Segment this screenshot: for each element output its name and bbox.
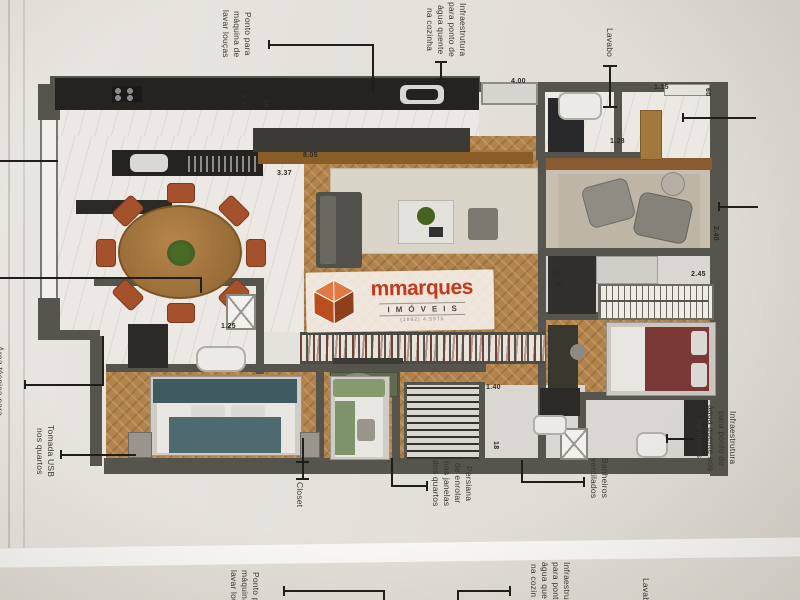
toilet bbox=[533, 415, 567, 435]
dining-chair bbox=[167, 303, 195, 323]
dining-table bbox=[118, 205, 242, 299]
leader-line bbox=[372, 44, 374, 92]
annotation-ponto-maquina-lavar: Ponto para máquina de lavar louças bbox=[220, 10, 253, 58]
leader-line bbox=[720, 206, 758, 208]
leader-tick bbox=[509, 586, 511, 596]
headboard-wall bbox=[545, 158, 712, 170]
leader-line bbox=[391, 458, 393, 487]
leader-line bbox=[302, 438, 304, 479]
wardrobe-hangers bbox=[598, 284, 714, 320]
annotation-tomada-usb: Tomada USB nos quartos bbox=[34, 425, 56, 477]
dimension-label: 8.05 bbox=[303, 152, 318, 159]
leader-line bbox=[102, 336, 104, 386]
master-toilet bbox=[636, 432, 668, 458]
coffee-table bbox=[398, 200, 454, 244]
pillow bbox=[691, 331, 707, 355]
logo-cube-icon bbox=[312, 278, 357, 327]
leader-line bbox=[457, 590, 511, 592]
leader-tick bbox=[435, 78, 447, 80]
annotation-banheiros-ventilados: Banheiros ventilados bbox=[588, 458, 610, 498]
dining-chair bbox=[246, 239, 266, 267]
leader-line bbox=[383, 590, 385, 600]
annotation-lavabo: Lavabo bbox=[604, 28, 615, 57]
annotation-next-lavabo: Lavabo bbox=[640, 578, 651, 600]
island-vent-slats bbox=[188, 156, 258, 172]
bed-single bbox=[330, 376, 390, 460]
leader-line bbox=[521, 481, 584, 483]
brand-name: mmarques bbox=[356, 277, 488, 299]
master-bed bbox=[606, 322, 716, 396]
dimension-label: 1.28 bbox=[610, 138, 625, 145]
dimension-label: 1.15 bbox=[654, 84, 669, 91]
dimension-label: 18 bbox=[262, 99, 269, 107]
leader-tick bbox=[583, 477, 585, 487]
desk bbox=[548, 325, 578, 395]
dimension-label: 60 bbox=[704, 88, 711, 96]
coffee-table-tray bbox=[429, 227, 443, 237]
logo-text: mmarques IMÓVEIS (1892) 4.5975 bbox=[356, 277, 489, 323]
leader-tick bbox=[435, 61, 447, 63]
dining-chair bbox=[167, 183, 195, 203]
annotation-closet: Closet bbox=[294, 482, 305, 507]
bed-sheet bbox=[611, 327, 645, 391]
brand-fine-print: (1892) 4.5975 bbox=[356, 315, 488, 323]
window bbox=[40, 120, 58, 298]
leader-line bbox=[62, 454, 136, 456]
leader-tick bbox=[296, 461, 309, 463]
cooktop bbox=[112, 86, 142, 102]
dimension-label: 18 bbox=[551, 270, 559, 277]
pillow bbox=[191, 405, 225, 417]
leader-line bbox=[0, 277, 202, 279]
dimension-label: 4.00 bbox=[511, 78, 526, 85]
blanket bbox=[335, 401, 355, 455]
annotation-next-ponto-maquina: Ponto p máquina lavar lou bbox=[228, 570, 261, 600]
dimension-label: 1.25 bbox=[221, 323, 236, 330]
sink-basin bbox=[406, 89, 438, 100]
brochure-page: 2.77 18 8.05 3.37 4.00 1.15 60 1.28 2.45… bbox=[0, 0, 800, 556]
leader-line bbox=[200, 277, 202, 293]
floor-plan-photo: 2.77 18 8.05 3.37 4.00 1.15 60 1.28 2.45… bbox=[0, 0, 800, 600]
wardrobe-rod bbox=[600, 300, 708, 302]
leader-line bbox=[440, 62, 442, 79]
wall bbox=[614, 86, 622, 160]
brand-subtitle: IMÓVEIS bbox=[379, 302, 465, 316]
kitchen-sink bbox=[400, 85, 444, 104]
dimension-label: 1.40 bbox=[486, 384, 501, 391]
leader-line bbox=[521, 460, 523, 483]
headboard bbox=[153, 379, 297, 403]
dining-chair bbox=[96, 239, 116, 267]
sofa-cushions bbox=[320, 196, 336, 264]
headboard bbox=[333, 379, 385, 397]
annotation-area-tecnica: Área técnica para bbox=[0, 346, 5, 416]
leader-tick bbox=[603, 106, 617, 108]
leader-line bbox=[285, 590, 385, 592]
wall bbox=[256, 278, 264, 374]
dimension-label: 2.77 bbox=[239, 94, 246, 109]
media-panel bbox=[253, 128, 470, 152]
sofa bbox=[316, 192, 362, 268]
leader-tick bbox=[296, 478, 309, 480]
leader-line bbox=[270, 44, 374, 46]
annotation-persiana: Persiana de enrolar nas janelas dos quar… bbox=[430, 460, 474, 507]
desk-chair bbox=[570, 344, 586, 360]
wall bbox=[90, 336, 102, 466]
leader-tick bbox=[426, 481, 428, 491]
entry-cabinet bbox=[640, 110, 662, 160]
closet-wardrobe bbox=[404, 382, 482, 462]
bed-double bbox=[150, 376, 302, 456]
leader-line bbox=[391, 485, 427, 487]
blanket bbox=[169, 417, 281, 453]
annotation-next-infra-cozinha: Infraestru para pont água que na cozin bbox=[528, 562, 572, 600]
bathroom-vanity bbox=[540, 388, 580, 416]
kitchen-window bbox=[481, 82, 538, 105]
dimension-label: 2.45 bbox=[691, 271, 706, 278]
annotation-infra-agua-cozinha: Infraestrutura para ponto de água quente… bbox=[424, 2, 468, 57]
annotation-infra-agua-banheiros: Infraestrutura para ponto de água quente… bbox=[694, 405, 738, 471]
beam bbox=[258, 150, 533, 164]
dimension-label: 3.37 bbox=[277, 170, 292, 177]
wall bbox=[545, 248, 712, 256]
entry-floor bbox=[618, 92, 712, 160]
cushion bbox=[357, 419, 375, 441]
laundry-cabinet bbox=[128, 324, 168, 368]
dimension-label: 18 bbox=[492, 441, 499, 449]
bathtub bbox=[196, 346, 246, 372]
shower bbox=[596, 256, 658, 284]
side-table bbox=[468, 208, 498, 240]
coffee-table-plant bbox=[417, 207, 435, 225]
round-side-table bbox=[661, 172, 685, 196]
pillow bbox=[231, 405, 265, 417]
dimension-label: 3.40 bbox=[548, 282, 563, 289]
leader-line bbox=[668, 438, 694, 440]
leader-line bbox=[26, 384, 104, 386]
island-sink bbox=[130, 154, 168, 172]
leader-tick bbox=[603, 65, 617, 67]
lavabo-toilet bbox=[558, 92, 602, 120]
pillow bbox=[691, 363, 707, 387]
console-shadow bbox=[333, 358, 403, 364]
leader-line bbox=[684, 117, 756, 119]
table-centerpiece-plant bbox=[167, 240, 195, 266]
leader-line bbox=[0, 160, 58, 162]
dimension-label: 2.40 bbox=[712, 226, 719, 241]
watermark-logo: mmarques IMÓVEIS (1892) 4.5975 bbox=[305, 269, 494, 332]
leader-line bbox=[609, 66, 611, 108]
